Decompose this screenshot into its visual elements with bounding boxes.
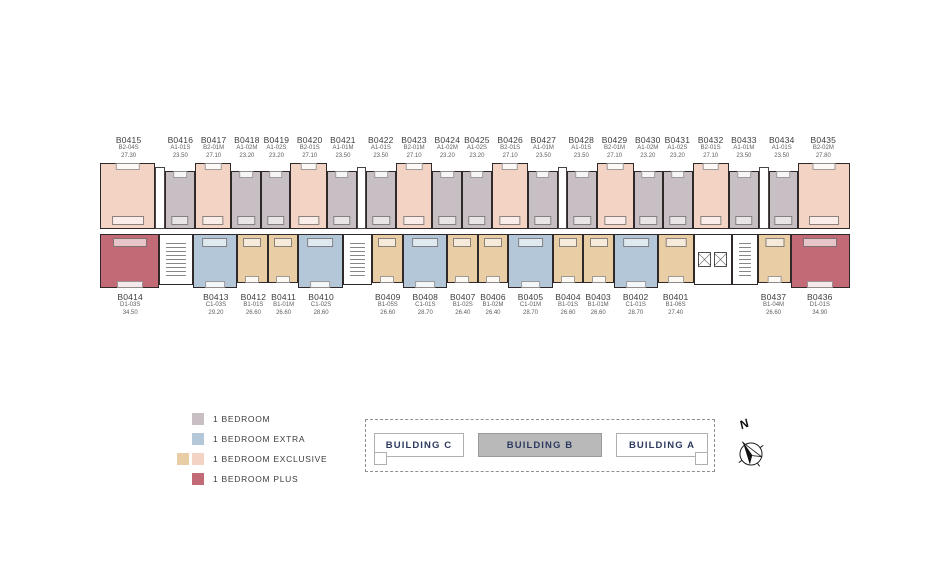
unit-id-text: B0423 [396,135,433,145]
unit-label-B0421: B0421A1-01M23.50 [328,135,358,160]
building-tab-label: BUILDING C [386,440,452,451]
shaft-core [357,167,367,229]
unit-label-B0414: B0414D1-03S34.50 [100,292,160,317]
unit-label-B0424: B0424A1-02M23.20 [433,135,463,160]
legend-color-swatch [192,473,204,485]
unit-B0432 [693,163,729,229]
building-tab-label: BUILDING B [507,440,573,451]
unit-id-text: B0437 [757,292,789,302]
unit-label-B0430: B0430A1-02M23.20 [633,135,663,160]
unit-id-text: B0410 [299,292,344,302]
unit-type-text: A1-01M [328,145,358,153]
unit-type-text: A1-02M [232,145,262,153]
unit-label-B0407: B0407B1-02S26.40 [448,292,478,317]
unit-id-text: B0436 [790,292,850,302]
unit-id-text: B0424 [433,135,463,145]
unit-label-B0434: B0434A1-01S23.50 [767,135,797,160]
unit-type-text: D1-01S [790,302,850,310]
unit-type-text: B2-01S [692,145,729,153]
elevator-icon [714,252,727,267]
unit-type-text: A1-02M [633,145,663,153]
unit-id-text: B0427 [529,135,559,145]
unit-B0421 [327,171,357,229]
unit-B0416 [165,171,195,229]
unit-B0417 [195,163,231,229]
unit-type-text: A1-02S [262,145,292,153]
unit-B0408 [403,234,447,288]
unit-type-text: B1-05S [373,302,403,310]
unit-type-text: B2-01S [492,145,529,153]
unit-id-text: B0408 [403,292,448,302]
unit-label-B0416: B0416A1-01S23.50 [166,135,196,160]
shaft-core [155,167,165,229]
unit-B0424 [432,171,462,229]
unit-id-text: B0428 [567,135,597,145]
unit-B0433 [729,171,759,229]
bottom-unit-labels: B0414D1-03S34.50B0413C1-03S29.20B0412B1-… [100,292,850,317]
legend-row: 1 BEDROOM PLUS [177,472,327,485]
unit-area-text: 23.20 [433,153,463,161]
legend-row: 1 BEDROOM EXCLUSIVE [177,452,327,465]
top-unit-band [100,163,850,229]
legend-swatches [177,413,204,425]
unit-B0430 [634,171,664,229]
legend-row: 1 BEDROOM EXTRA [177,432,327,445]
unit-type-text: A1-01M [729,145,759,153]
legend-label: 1 BEDROOM EXCLUSIVE [213,454,327,464]
unit-area-text: 27.40 [658,310,693,318]
unit-id-text: B0431 [663,135,693,145]
unit-id-text: B0419 [262,135,292,145]
legend-label: 1 BEDROOM PLUS [213,474,298,484]
building-locator: BUILDING CBUILDING BBUILDING A [365,419,715,472]
unit-B0403 [583,234,614,283]
unit-type-text: B1-01M [269,302,299,310]
unit-id-text: B0412 [238,292,268,302]
unit-id-text: B0405 [508,292,553,302]
unit-area-text: 34.90 [790,310,850,318]
unit-id-text: B0404 [553,292,583,302]
unit-area-text: 27.10 [492,153,529,161]
unit-type-text: B2-02M [797,145,851,153]
unit-type-text: B1-04M [757,302,789,310]
unit-area-text: 23.20 [262,153,292,161]
unit-area-text: 23.50 [729,153,759,161]
unit-B0404 [553,234,584,283]
unit-label-B0401: B0401B1-06S27.40 [658,292,693,317]
unit-id-text: B0426 [492,135,529,145]
unit-area-text: 23.50 [328,153,358,161]
stairs-core [732,234,758,285]
unit-B0420 [290,163,326,229]
unit-type-text: A1-01S [767,145,797,153]
unit-type-text: A1-01S [567,145,597,153]
legend-swatches [177,453,204,465]
unit-type-text: A1-01S [366,145,396,153]
unit-type-text: B1-02S [448,302,478,310]
unit-label-B0419: B0419A1-02S23.20 [262,135,292,160]
unit-type-text: C1-01S [613,302,658,310]
unit-B0434 [769,171,799,229]
unit-label-B0418: B0418A1-02M23.20 [232,135,262,160]
unit-type-text: C1-01S [403,302,448,310]
unit-area-text: 26.60 [553,310,583,318]
unit-B0427 [528,171,558,229]
legend-color-swatch [192,413,204,425]
unit-area-text: 27.30 [100,153,157,161]
unit-type-legend: 1 BEDROOM1 BEDROOM EXTRA1 BEDROOM EXCLUS… [177,412,327,492]
unit-B0415 [100,163,155,229]
unit-label-B0402: B0402C1-01S28.70 [613,292,658,317]
building-tab-a[interactable]: BUILDING A [616,433,708,457]
elevator-icon [698,252,711,267]
unit-label-B0433: B0433A1-01M23.50 [729,135,759,160]
stairs-core [159,234,192,285]
unit-area-text: 27.80 [797,153,851,161]
unit-label-B0408: B0408C1-01S28.70 [403,292,448,317]
unit-area-text: 23.20 [663,153,693,161]
unit-area-text: 28.70 [508,310,553,318]
unit-id-text: B0425 [462,135,492,145]
unit-label-B0405: B0405C1-01M28.70 [508,292,553,317]
unit-label-B0435: B0435B2-02M27.80 [797,135,851,160]
stairs-core [343,234,373,285]
legend-label: 1 BEDROOM [213,414,270,424]
unit-B0428 [567,171,597,229]
elevator-core [694,234,733,285]
unit-area-text: 23.50 [767,153,797,161]
unit-type-text: C1-03S [194,302,239,310]
unit-label-B0409: B0409B1-05S26.60 [373,292,403,317]
unit-label-B0420: B0420B2-01S27.10 [291,135,328,160]
unit-label-B0417: B0417B2-01M27.10 [195,135,232,160]
unit-B0406 [478,234,509,283]
unit-B0405 [508,234,552,288]
unit-B0429 [597,163,633,229]
unit-label-B0431: B0431A1-02S23.20 [663,135,693,160]
unit-type-text: B2-04S [100,145,157,153]
unit-id-text: B0435 [797,135,851,145]
building-tab-label: BUILDING A [629,440,695,451]
unit-id-text: B0432 [692,135,729,145]
unit-label-B0412: B0412B1-01S26.60 [238,292,268,317]
unit-B0411 [268,234,299,283]
unit-B0409 [372,234,403,283]
unit-type-text: C1-01M [508,302,553,310]
unit-type-text: A1-01S [166,145,196,153]
unit-area-text: 23.50 [366,153,396,161]
unit-id-text: B0429 [596,135,633,145]
unit-area-text: 28.70 [403,310,448,318]
unit-area-text: 26.40 [478,310,508,318]
legend-color-swatch [177,453,189,465]
legend-row: 1 BEDROOM [177,412,327,425]
unit-id-text: B0422 [366,135,396,145]
unit-B0419 [261,171,291,229]
unit-id-text: B0434 [767,135,797,145]
unit-label-B0404: B0404B1-01S26.60 [553,292,583,317]
unit-area-text: 23.50 [567,153,597,161]
building-tab-b[interactable]: BUILDING B [478,433,602,457]
unit-type-text: B2-01M [396,145,433,153]
unit-B0431 [663,171,693,229]
unit-B0435 [798,163,850,229]
unit-B0414 [100,234,159,288]
unit-type-text: A1-02S [462,145,492,153]
legend-label: 1 BEDROOM EXTRA [213,434,305,444]
bottom-unit-band [100,234,850,288]
floor-plan-page: B0415B2-04S27.30B0416A1-01S23.50B0417B2-… [0,0,950,567]
legend-swatches [177,473,204,485]
unit-area-text: 27.10 [596,153,633,161]
unit-type-text: C1-02S [299,302,344,310]
unit-label-B0422: B0422A1-01S23.50 [366,135,396,160]
unit-id-text: B0407 [448,292,478,302]
shaft-core [759,167,769,229]
unit-label-B0426: B0426B2-01S27.10 [492,135,529,160]
unit-label-B0413: B0413C1-03S29.20 [194,292,239,317]
unit-id-text: B0430 [633,135,663,145]
unit-area-text: 27.10 [291,153,328,161]
unit-type-text: B2-01M [596,145,633,153]
building-b-floor-plan: B0415B2-04S27.30B0416A1-01S23.50B0417B2-… [100,122,850,317]
top-unit-labels: B0415B2-04S27.30B0416A1-01S23.50B0417B2-… [100,122,850,160]
unit-label-B0432: B0432B2-01S27.10 [692,135,729,160]
building-wing-shape [374,452,387,465]
unit-type-text: D1-03S [100,302,160,310]
unit-label-B0429: B0429B2-01M27.10 [596,135,633,160]
unit-id-text: B0403 [583,292,613,302]
unit-B0422 [366,171,396,229]
unit-area-text: 27.10 [396,153,433,161]
unit-label-B0437: B0437B1-04M26.60 [757,292,789,317]
unit-area-text: 27.10 [692,153,729,161]
unit-type-text: A1-02S [663,145,693,153]
unit-B0407 [447,234,478,283]
shaft-core [558,167,568,229]
unit-area-text: 26.60 [269,310,299,318]
unit-id-text: B0421 [328,135,358,145]
unit-type-text: B1-02M [478,302,508,310]
unit-type-text: B2-01M [195,145,232,153]
unit-id-text: B0401 [658,292,693,302]
unit-id-text: B0416 [166,135,196,145]
building-tab-c[interactable]: BUILDING C [374,433,464,457]
unit-B0410 [298,234,342,288]
unit-id-text: B0411 [269,292,299,302]
unit-type-text: A1-01M [529,145,559,153]
north-compass: N [731,416,771,474]
unit-type-text: B1-01S [238,302,268,310]
unit-area-text: 26.60 [238,310,268,318]
unit-area-text: 28.70 [613,310,658,318]
unit-label-B0415: B0415B2-04S27.30 [100,135,157,160]
unit-id-text: B0415 [100,135,157,145]
unit-type-text: B1-01M [583,302,613,310]
unit-id-text: B0420 [291,135,328,145]
legend-color-swatch [192,433,204,445]
unit-label-B0406: B0406B1-02M26.40 [478,292,508,317]
unit-area-text: 23.20 [462,153,492,161]
unit-B0423 [396,163,432,229]
unit-area-text: 26.60 [583,310,613,318]
legend-color-swatch [192,453,204,465]
unit-B0436 [791,234,850,288]
unit-label-B0427: B0427A1-01M23.50 [529,135,559,160]
unit-B0413 [193,234,237,288]
unit-area-text: 34.50 [100,310,160,318]
unit-area-text: 26.60 [757,310,789,318]
unit-type-text: B1-01S [553,302,583,310]
unit-id-text: B0418 [232,135,262,145]
unit-id-text: B0402 [613,292,658,302]
unit-area-text: 26.60 [373,310,403,318]
unit-label-B0423: B0423B2-01M27.10 [396,135,433,160]
unit-type-text: A1-02M [433,145,463,153]
unit-label-B0428: B0428A1-01S23.50 [567,135,597,160]
unit-id-text: B0409 [373,292,403,302]
legend-swatches [177,433,204,445]
compass-needle-icon [731,430,771,474]
unit-type-text: B2-01S [291,145,328,153]
unit-area-text: 28.60 [299,310,344,318]
unit-area-text: 26.40 [448,310,478,318]
unit-B0412 [237,234,268,283]
unit-B0418 [231,171,261,229]
unit-B0401 [658,234,693,283]
unit-label-B0425: B0425A1-02S23.20 [462,135,492,160]
unit-area-text: 23.20 [633,153,663,161]
unit-label-B0411: B0411B1-01M26.60 [269,292,299,317]
unit-id-text: B0433 [729,135,759,145]
unit-B0426 [492,163,528,229]
unit-B0437 [758,234,790,283]
unit-id-text: B0413 [194,292,239,302]
unit-B0402 [614,234,658,288]
unit-area-text: 23.20 [232,153,262,161]
unit-B0425 [462,171,492,229]
unit-label-B0410: B0410C1-02S28.60 [299,292,344,317]
unit-area-text: 23.50 [529,153,559,161]
unit-area-text: 27.10 [195,153,232,161]
unit-label-B0403: B0403B1-01M26.60 [583,292,613,317]
unit-id-text: B0417 [195,135,232,145]
building-wing-shape [695,452,708,465]
unit-label-B0436: B0436D1-01S34.90 [790,292,850,317]
unit-id-text: B0414 [100,292,160,302]
unit-area-text: 23.50 [166,153,196,161]
unit-type-text: B1-06S [658,302,693,310]
unit-id-text: B0406 [478,292,508,302]
unit-area-text: 29.20 [194,310,239,318]
